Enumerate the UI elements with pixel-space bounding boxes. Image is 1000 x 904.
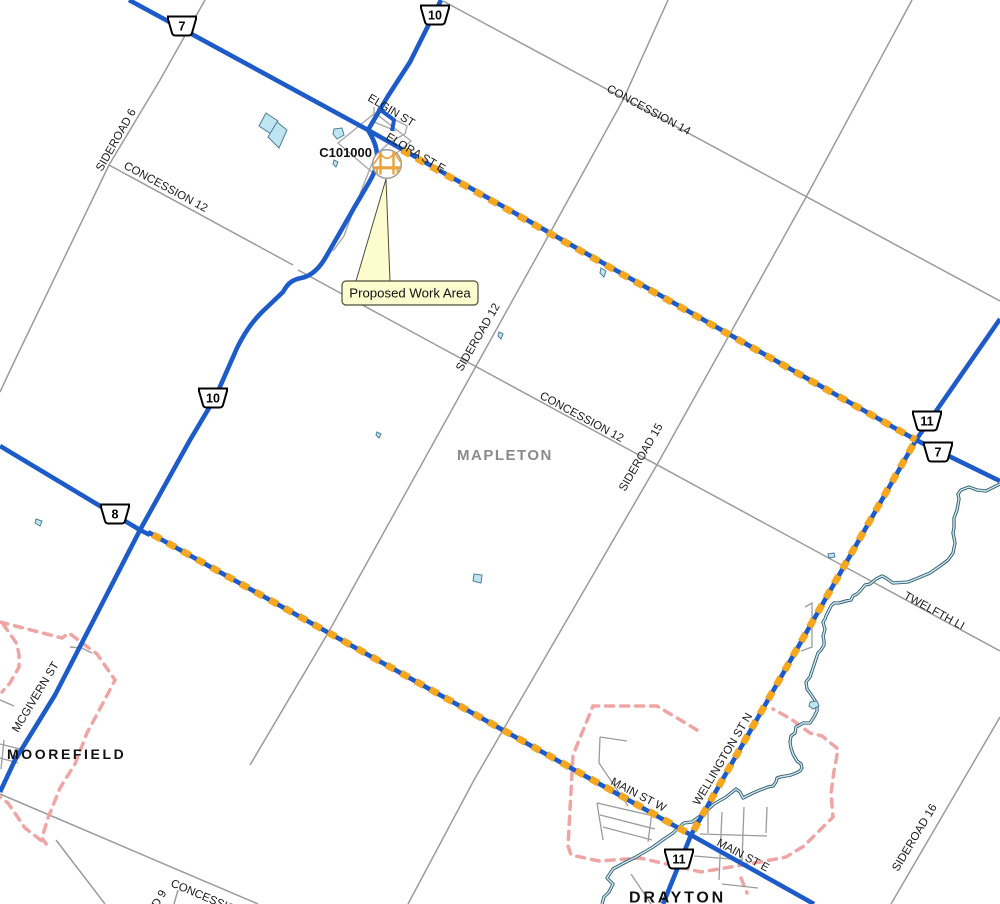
svg-text:10: 10 [206,392,220,406]
svg-text:MOOREFIELD: MOOREFIELD [7,746,126,762]
svg-text:11: 11 [672,853,685,867]
svg-text:7: 7 [179,20,186,34]
svg-text:8: 8 [112,508,119,522]
svg-text:10: 10 [428,9,442,23]
svg-text:MAPLETON: MAPLETON [457,447,553,464]
svg-text:11: 11 [920,415,933,429]
svg-text:DRAYTON: DRAYTON [629,890,726,904]
svg-text:C101000: C101000 [319,145,372,160]
svg-text:7: 7 [935,446,942,460]
svg-text:Proposed Work Area: Proposed Work Area [349,286,471,301]
